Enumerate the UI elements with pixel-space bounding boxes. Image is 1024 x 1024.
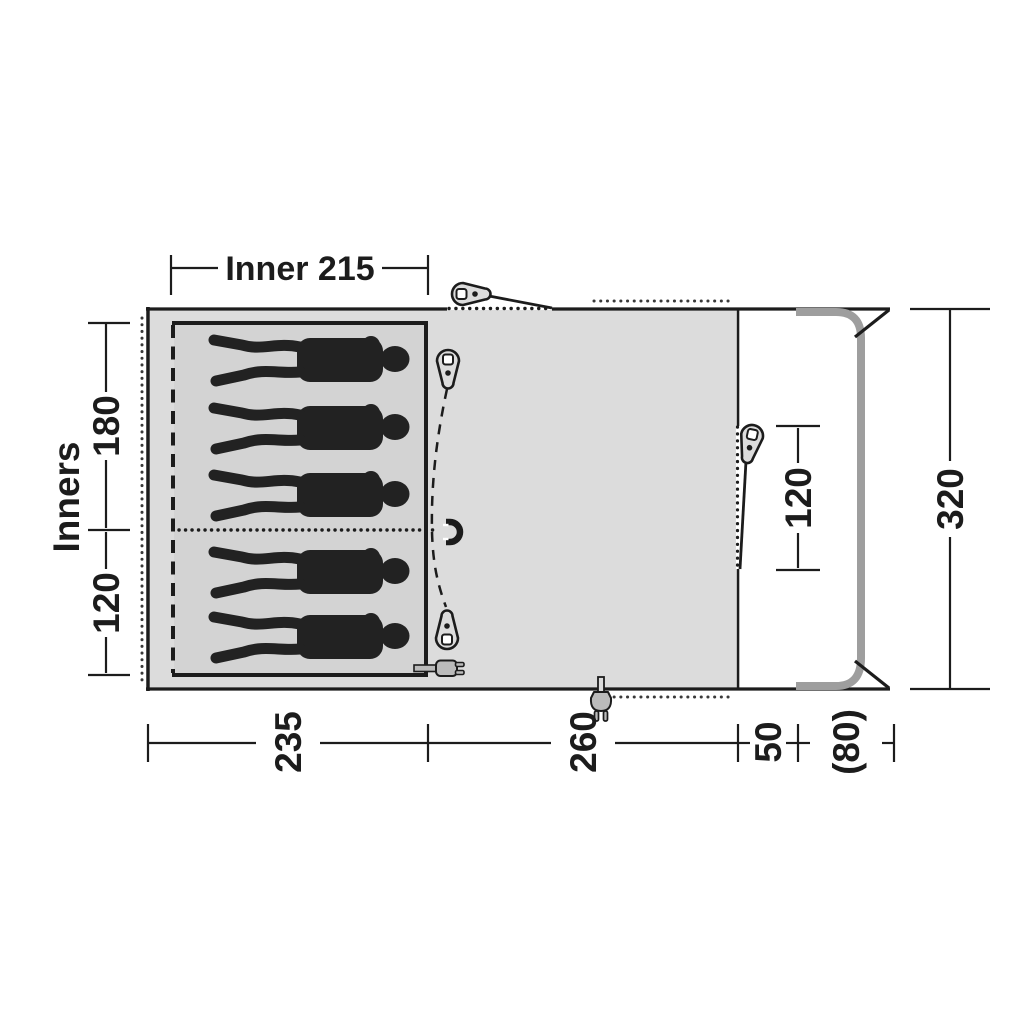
zipper-pull-icon: [736, 423, 766, 465]
width-bedroom-label: 235: [268, 711, 309, 773]
side-door-height-label: 120: [778, 467, 819, 529]
zipper-pull-icon: [452, 283, 491, 305]
width-tunnel-label: 50: [748, 721, 789, 762]
total-depth-label: 320: [930, 468, 971, 530]
zipper-cord: [489, 296, 552, 308]
dimension-bottom-widths: 235 260 50 (80): [148, 709, 894, 775]
dimension-inner-width: Inner 215: [171, 250, 428, 295]
dimension-total-depth: 320: [910, 309, 990, 689]
dimension-inner-depth: Inners 180 120: [46, 323, 130, 675]
inner-depth-a-label: 180: [86, 395, 127, 457]
tent-floorplan-page: Inner 215 Inners 180 120 120 320: [0, 0, 1024, 1024]
tent-floorplan-diagram: Inner 215 Inners 180 120 120 320: [0, 0, 1024, 1024]
width-living-label: 260: [563, 711, 604, 773]
inner-width-label: Inner 215: [225, 250, 374, 288]
dimension-side-door: 120: [776, 426, 820, 570]
zipper-cord: [740, 461, 746, 569]
inners-label: Inners: [46, 441, 87, 552]
side-door-zipper: [736, 423, 766, 569]
front-door-zipper: [452, 283, 552, 308]
width-connection-label: (80): [826, 709, 867, 775]
inner-depth-b-label: 120: [86, 572, 127, 634]
